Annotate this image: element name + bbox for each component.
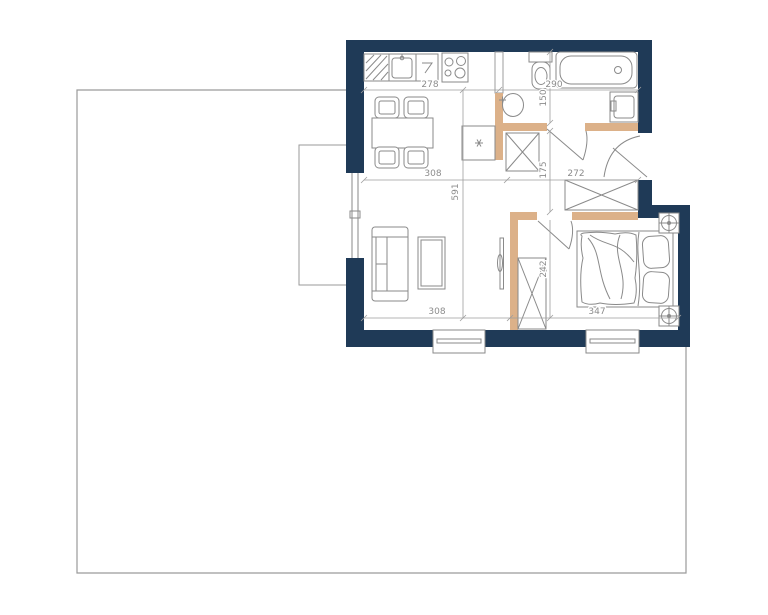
partition-bathroom-bottom-left [503,123,547,131]
window-bottom-bedroom [586,330,639,353]
dimension-label: 150 [539,89,549,106]
dimension-label: 347 [588,307,605,317]
window-left [346,173,364,258]
dimension-label: 175 [539,161,549,178]
window-left-opening [346,173,364,258]
floor-plan-canvas: 278 290 150 308 591 175 272 242 308 347 [0,0,768,615]
wall-right-bathroom [638,40,652,133]
nightstand [659,213,679,233]
dining-chair [375,97,399,118]
stove [442,53,468,82]
dining-chair [404,97,428,118]
coffee-table [418,237,445,289]
dimension-label: 272 [567,169,584,179]
bathtub [556,52,637,88]
wall-bedroom-right [678,205,690,347]
dining-table [372,118,433,148]
partition-bedroom-right [572,212,638,220]
wall-left-upper [346,40,364,173]
wall-top [346,40,652,52]
dining-chair [375,147,399,168]
washbasin-bowl [503,94,524,117]
window-bottom-living [433,330,485,353]
partition-bathroom-bottom-right [585,123,638,131]
washing-machine [610,92,638,122]
window-sill [586,330,639,353]
partition-bedroom-left [518,212,537,220]
dimension-label: 308 [428,307,445,317]
pillow [642,235,670,269]
wall-bottom-left [346,330,435,347]
sofa [372,227,408,301]
nightstand [659,306,679,326]
wall-bottom-middle [483,330,588,347]
pillow [642,271,670,304]
hall-wardrobe [565,180,638,210]
dimension-label: 290 [545,80,562,90]
hall-closet [506,133,539,171]
fridge [462,126,495,160]
bathtub-rim [556,52,637,88]
terrace-outline [299,145,350,285]
window-sill [433,330,485,353]
partition-tv-wall [510,212,518,330]
partition-bathroom-left [495,93,503,160]
dimension-label: 278 [421,80,438,90]
dimension-label: 308 [424,169,441,179]
floor-plan-svg: 278 290 150 308 591 175 272 242 308 347 [0,0,768,615]
dimension-label: 242 [539,260,549,277]
dimension-label: 591 [451,183,461,200]
dining-chair [404,147,428,168]
